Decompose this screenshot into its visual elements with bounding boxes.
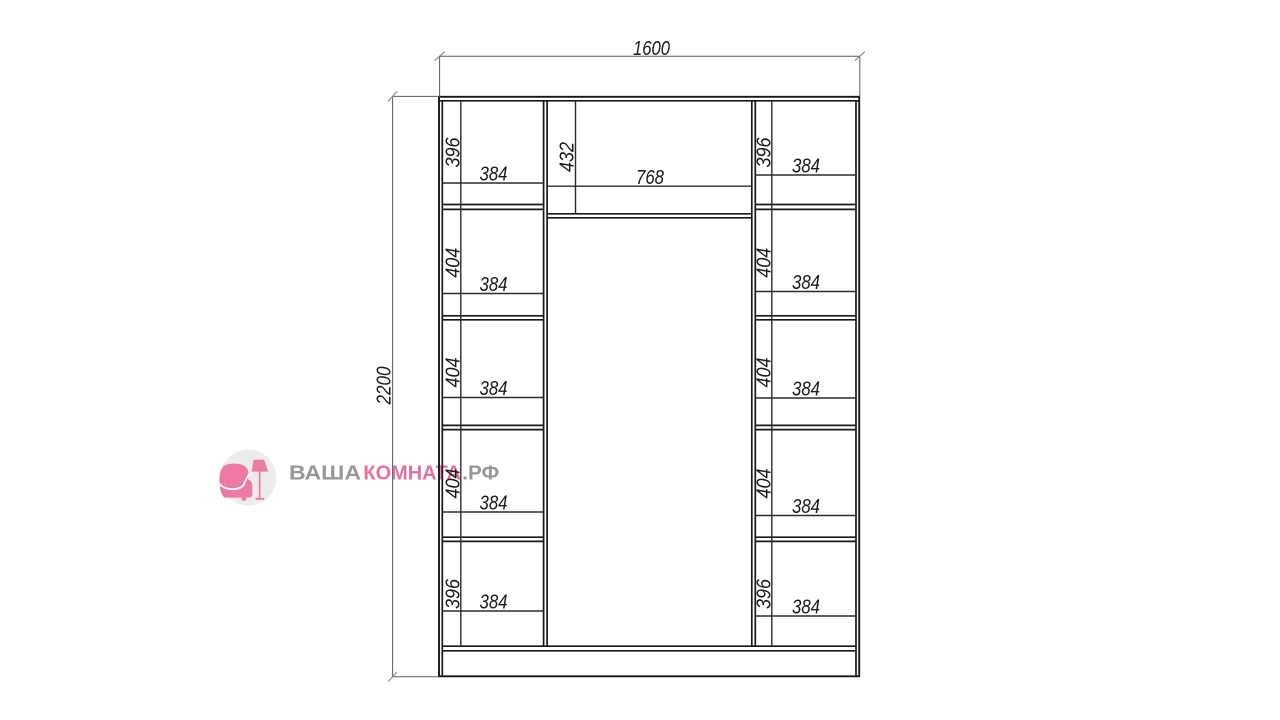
svg-text:384: 384 bbox=[792, 496, 820, 518]
svg-text:.РФ: .РФ bbox=[462, 463, 499, 485]
svg-text:396: 396 bbox=[443, 137, 465, 168]
svg-text:ВАША: ВАША bbox=[289, 463, 361, 485]
svg-text:384: 384 bbox=[480, 164, 508, 186]
svg-text:384: 384 bbox=[792, 379, 820, 401]
svg-text:396: 396 bbox=[754, 137, 776, 168]
svg-text:384: 384 bbox=[480, 274, 508, 296]
svg-text:384: 384 bbox=[792, 156, 820, 178]
svg-text:396: 396 bbox=[443, 578, 465, 609]
svg-text:384: 384 bbox=[480, 592, 508, 614]
svg-text:384: 384 bbox=[792, 272, 820, 294]
svg-text:432: 432 bbox=[557, 142, 579, 172]
svg-text:404: 404 bbox=[754, 358, 776, 388]
svg-text:404: 404 bbox=[443, 358, 465, 388]
svg-text:768: 768 bbox=[636, 167, 664, 189]
svg-text:1600: 1600 bbox=[633, 38, 670, 60]
svg-text:396: 396 bbox=[754, 578, 776, 609]
svg-text:404: 404 bbox=[754, 248, 776, 278]
svg-text:2200: 2200 bbox=[374, 367, 396, 406]
svg-text:384: 384 bbox=[480, 378, 508, 400]
svg-text:384: 384 bbox=[792, 597, 820, 619]
svg-text:404: 404 bbox=[754, 469, 776, 499]
svg-text:404: 404 bbox=[443, 248, 465, 278]
svg-text:404: 404 bbox=[443, 469, 465, 499]
svg-text:384: 384 bbox=[480, 493, 508, 515]
